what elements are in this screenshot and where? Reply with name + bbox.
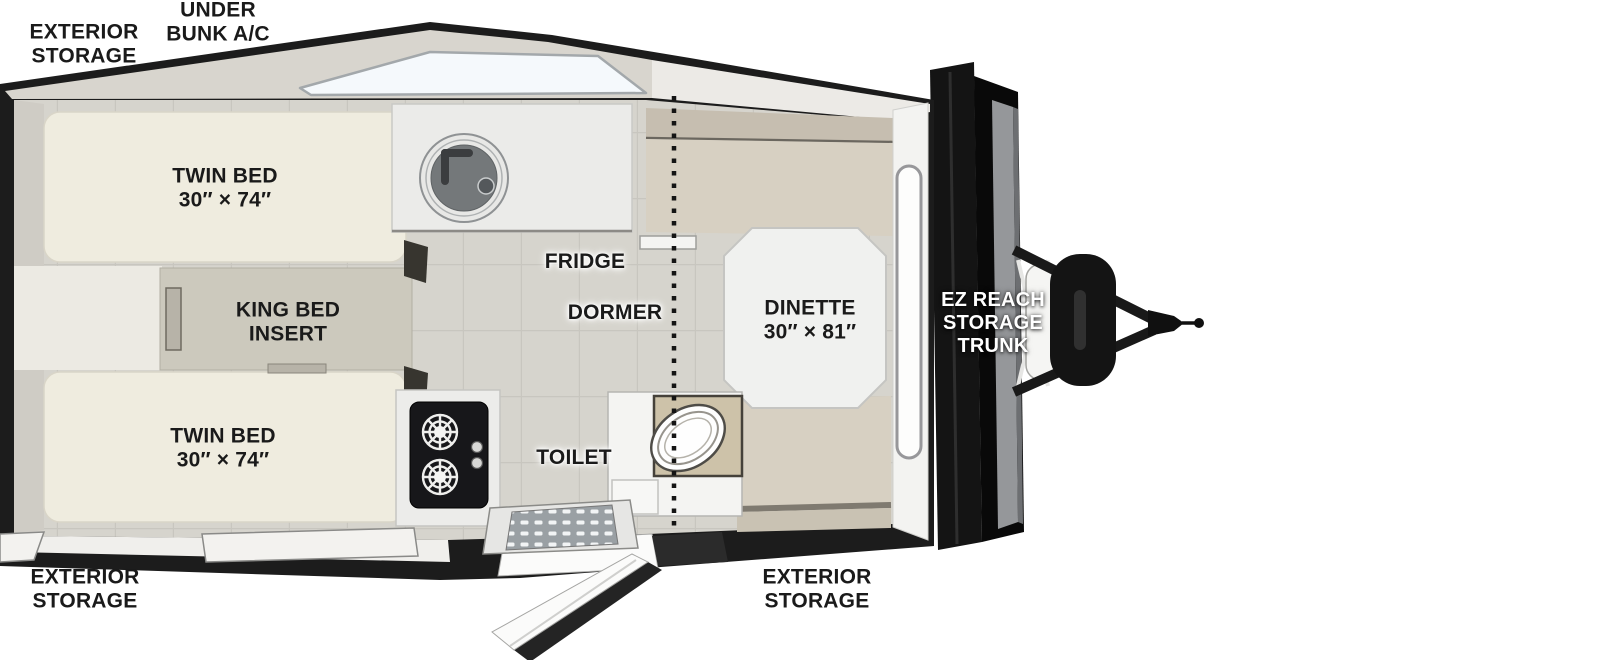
- dinette-bench-seat-right: [737, 396, 891, 509]
- label-exterior-storage-bottom-right: EXTERIOR STORAGE: [763, 566, 872, 615]
- dinette-step-edge: [737, 505, 891, 509]
- floorplan-diagram: EXTERIOR STORAGE UNDER BUNK A/C TWIN BED…: [0, 0, 1600, 660]
- label-king-bed-insert: KING BED INSERT: [236, 299, 340, 348]
- label-dinette: DINETTE 30″ × 81″: [764, 297, 857, 346]
- label-twin-bed-bottom: TWIN BED 30″ × 74″: [170, 425, 275, 474]
- sink-drain: [478, 178, 494, 194]
- storage-trunk-highlight: [1074, 290, 1086, 350]
- stove-burner-top: [423, 415, 457, 449]
- hitch-coupler: [1148, 310, 1184, 336]
- label-under-bunk-ac: UNDER BUNK A/C: [166, 0, 269, 47]
- fridge-vent-trim: [640, 236, 696, 249]
- label-ez-reach-storage-trunk: EZ REACH STORAGE TRUNK: [941, 289, 1045, 359]
- label-toilet: TOILET: [536, 446, 611, 470]
- label-twin-bed-top: TWIN BED 30″ × 74″: [172, 165, 277, 214]
- stove-burner-bottom: [423, 460, 457, 494]
- entry-step-dark: [652, 532, 728, 566]
- bed-corner-shadow-top: [404, 240, 428, 283]
- king-insert-handle: [166, 288, 181, 350]
- dinette-bench-seat-top: [646, 139, 893, 236]
- king-insert-latch: [268, 364, 326, 373]
- hitch-jack-knob: [1194, 318, 1204, 328]
- label-dormer: DORMER: [568, 301, 663, 325]
- sink-faucet-neck: [441, 149, 449, 185]
- label-exterior-storage-bottom-left: EXTERIOR STORAGE: [31, 566, 140, 615]
- front-window: [897, 166, 921, 458]
- label-fridge: FRIDGE: [545, 250, 626, 274]
- stove-knob-top: [472, 442, 483, 453]
- shower-mat: [506, 505, 618, 550]
- dinette-step-face: [737, 508, 891, 532]
- stove-knob-bottom: [472, 458, 483, 469]
- label-exterior-storage-top: EXTERIOR STORAGE: [30, 21, 139, 70]
- king-insert-platform: [14, 266, 162, 370]
- exterior-storage-hatch-left: [202, 528, 418, 562]
